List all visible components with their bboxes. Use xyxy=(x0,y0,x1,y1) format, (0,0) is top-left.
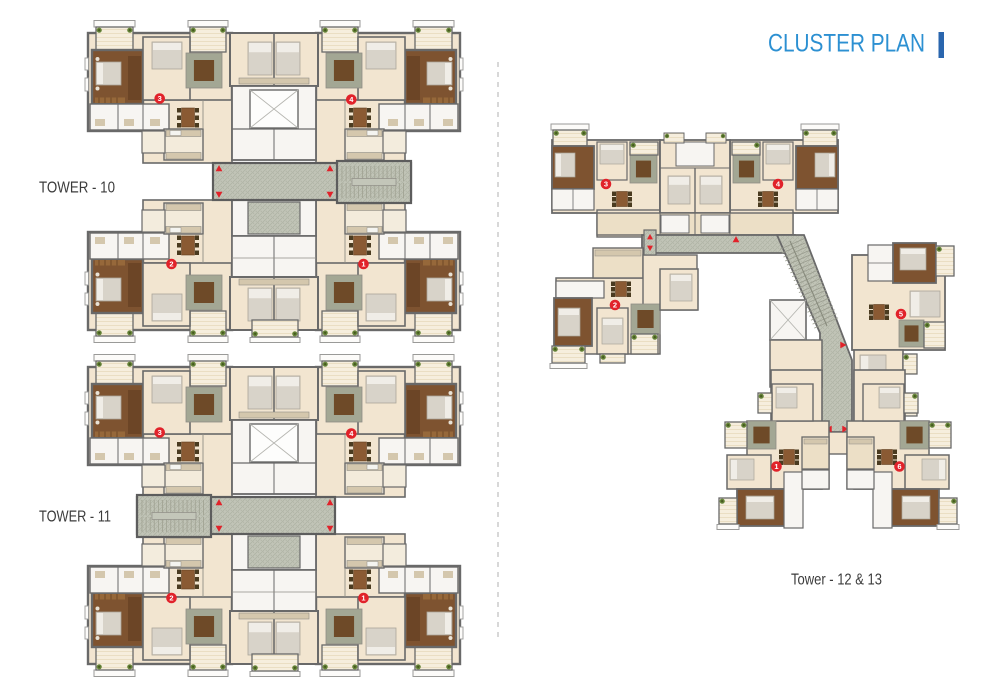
svg-text:TOWER - 11: TOWER - 11 xyxy=(39,509,111,526)
svg-text:6: 6 xyxy=(897,462,901,471)
svg-text:2: 2 xyxy=(613,301,617,310)
svg-text:1: 1 xyxy=(774,462,778,471)
svg-text:1: 1 xyxy=(361,594,365,603)
svg-text:1: 1 xyxy=(361,260,365,269)
svg-text:3: 3 xyxy=(158,94,162,103)
svg-text:3: 3 xyxy=(158,428,162,437)
svg-text:TOWER - 10: TOWER - 10 xyxy=(39,180,115,197)
svg-text:5: 5 xyxy=(899,310,903,319)
svg-text:2: 2 xyxy=(169,260,173,269)
svg-text:2: 2 xyxy=(169,594,173,603)
svg-text:3: 3 xyxy=(604,180,608,189)
svg-text:Tower - 12 & 13: Tower - 12 & 13 xyxy=(791,572,882,589)
svg-text:CLUSTER PLAN: CLUSTER PLAN xyxy=(768,30,925,58)
